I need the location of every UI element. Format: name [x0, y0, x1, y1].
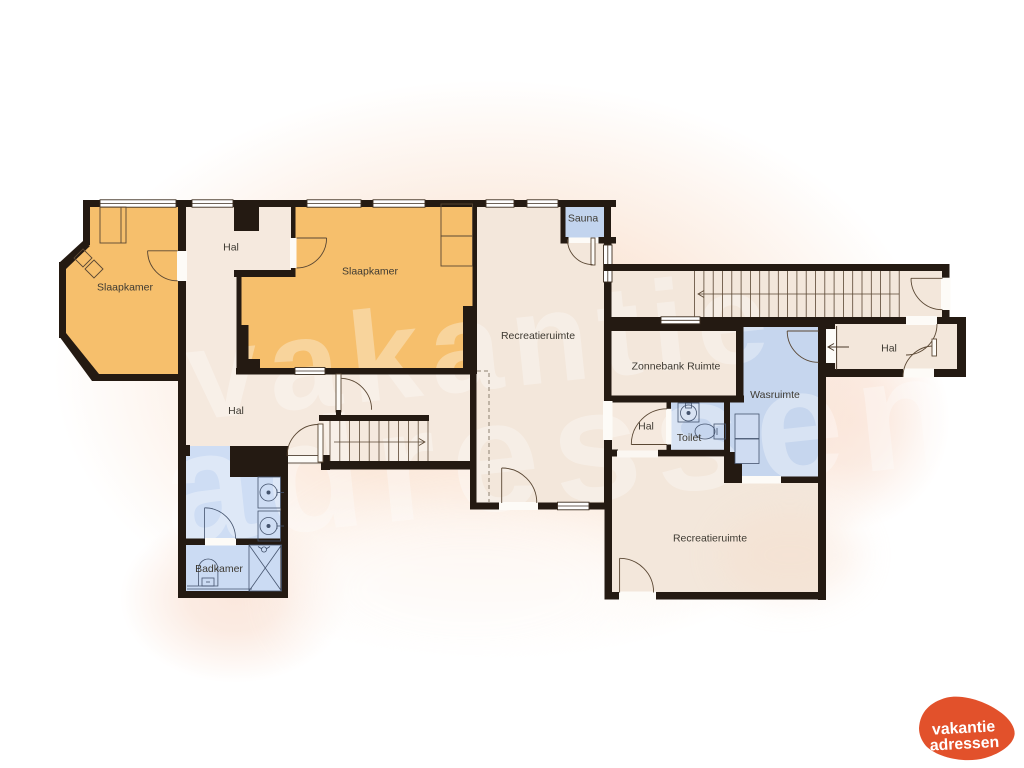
- svg-text:Recreatieruimte: Recreatieruimte: [501, 330, 575, 342]
- svg-text:Toilet: Toilet: [677, 432, 702, 444]
- svg-text:Hal: Hal: [223, 242, 239, 254]
- svg-text:adressen: adressen: [929, 734, 999, 755]
- svg-text:Zonnebank Ruimte: Zonnebank Ruimte: [632, 361, 721, 373]
- svg-text:Slaapkamer: Slaapkamer: [97, 282, 154, 294]
- svg-text:Wasruimte: Wasruimte: [750, 389, 800, 401]
- svg-text:Hal: Hal: [228, 405, 244, 417]
- svg-text:Recreatieruimte: Recreatieruimte: [673, 533, 747, 545]
- svg-text:Badkamer: Badkamer: [195, 563, 243, 575]
- svg-text:Hal: Hal: [881, 343, 897, 355]
- svg-text:Hal: Hal: [638, 421, 654, 433]
- svg-text:Slaapkamer: Slaapkamer: [342, 266, 399, 278]
- svg-text:Sauna: Sauna: [568, 213, 599, 225]
